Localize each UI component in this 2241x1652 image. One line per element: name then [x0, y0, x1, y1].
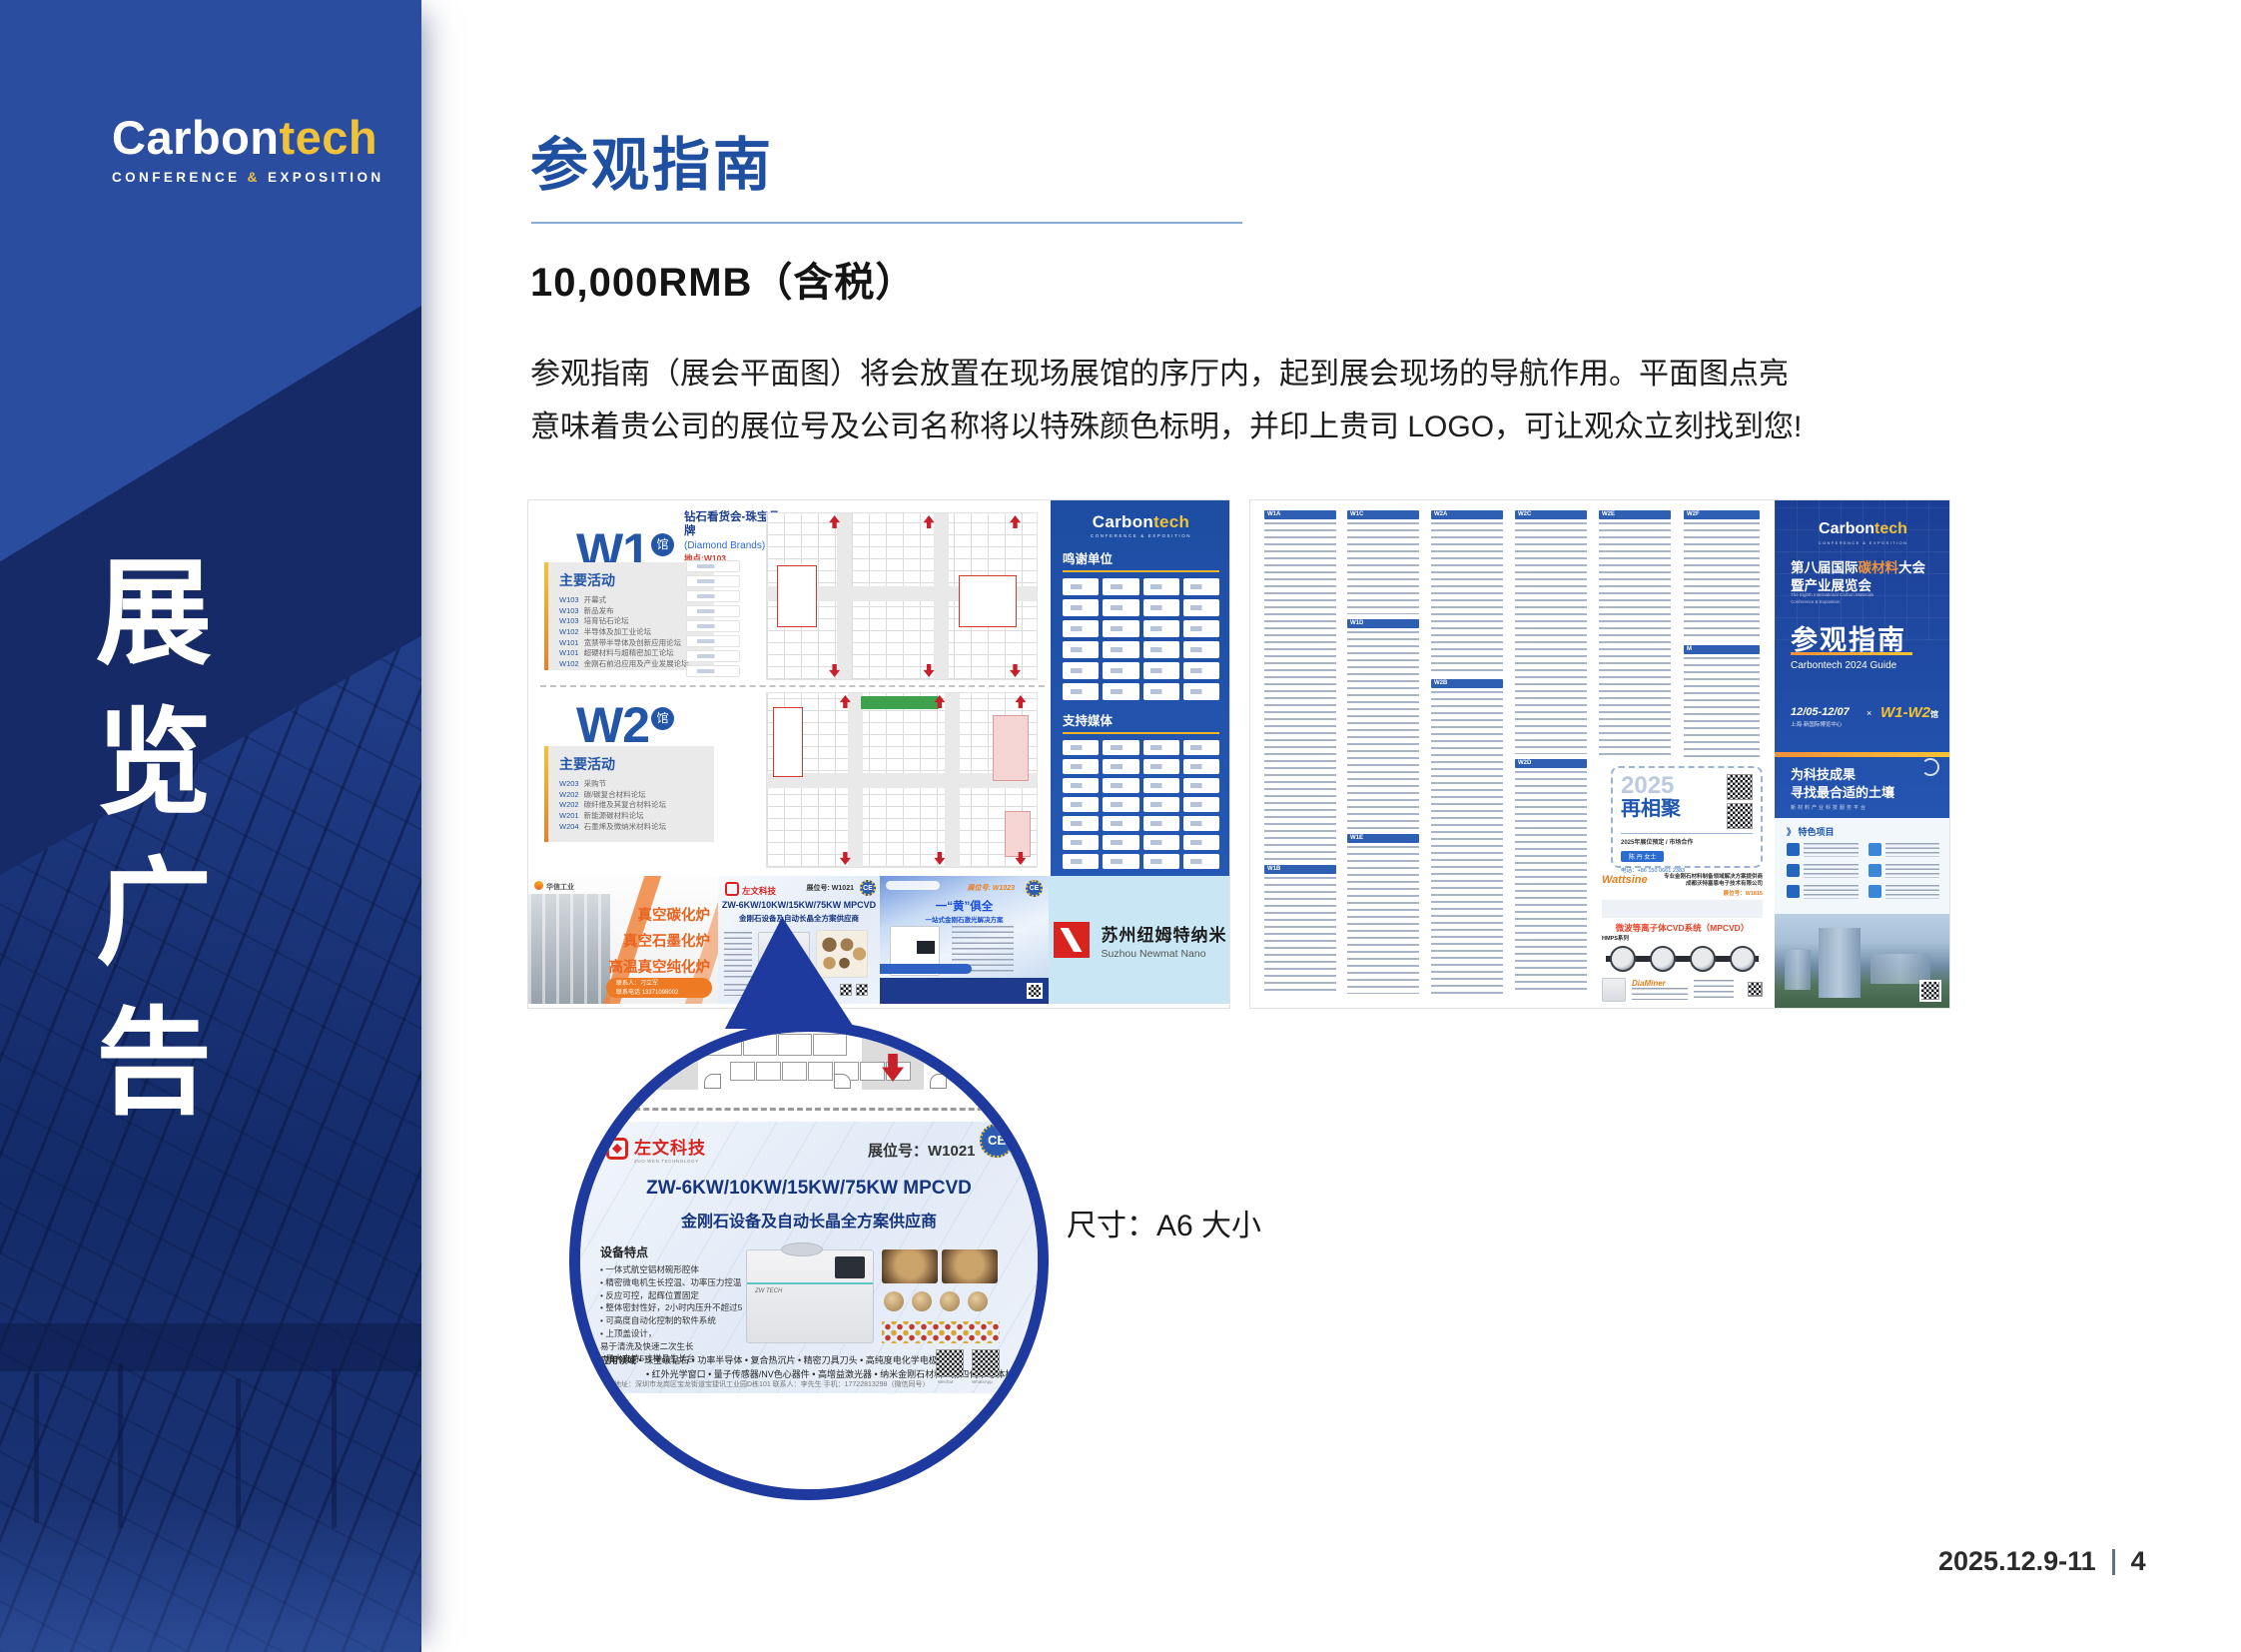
exhibitor-rows	[1347, 522, 1419, 614]
brand-logo-tile	[686, 575, 740, 587]
sponsor-logo-tile	[1143, 620, 1179, 637]
zw-subline: 金刚石设备及自动长晶全方案供应商	[580, 1208, 1038, 1232]
laser-machine-screen	[917, 941, 935, 954]
ad-laser: 展位号: W1023 CE 一“黄”俱全 一站式金刚石激光解决方案	[880, 876, 1049, 1004]
cover-halls-code: W1-W2	[1880, 704, 1930, 721]
wattsine-machines	[1602, 944, 1763, 974]
zw-logo-icon	[606, 1138, 628, 1160]
feature-item	[1787, 885, 1859, 899]
cover-guide-underline	[1791, 652, 1912, 655]
qr-code	[856, 984, 868, 996]
sponsor-logo-tile	[1183, 662, 1219, 679]
fold-dashed-line	[540, 685, 1045, 687]
exhibitor-rows	[1264, 877, 1336, 995]
media-logo-tile	[1183, 759, 1219, 774]
qr-code-whatsapp	[972, 1349, 1000, 1377]
laser-ribbon	[880, 964, 972, 974]
sample-photo	[912, 1291, 932, 1311]
wattsine-paragraph	[1602, 900, 1763, 918]
machine-circle-photo	[1730, 946, 1756, 972]
sample-photo	[882, 1249, 938, 1283]
media-logo-tile	[1143, 740, 1179, 755]
feature-lines	[1885, 885, 1940, 899]
zone-header: W1D	[1347, 619, 1419, 628]
zw-headline: ZW-6KW/10KW/15KW/75KW MPCVD	[718, 900, 880, 910]
sample-photo	[884, 1291, 904, 1311]
diaminer-lines2	[1694, 980, 1734, 1000]
newmat-logo	[1054, 922, 1090, 958]
diaminer-brand: DiaMiner	[1632, 979, 1688, 988]
cover-emblem-icon	[1921, 758, 1939, 776]
feature-line: • 一体式航空铝材碗形腔体	[600, 1263, 742, 1276]
sidebar: Carbontech CONFERENCE & EXPOSITION 展览广告	[0, 0, 421, 1652]
wattsine-line2: 成都沃特塞恩电子技术有限公司	[1664, 881, 1763, 888]
feature-item	[1787, 864, 1859, 878]
green-zone-label	[861, 696, 939, 709]
reunion-contact-pill: 陈 丹 女士	[1621, 851, 1664, 862]
sponsor-logo-tile	[1063, 599, 1099, 616]
media-logo-tile	[1063, 759, 1099, 774]
cover-features-title: 》 特色项目	[1787, 825, 1939, 838]
feature-lines	[1885, 843, 1940, 857]
activity-item: W204石墨烯及微纳米材料论坛	[559, 822, 708, 833]
media-underline	[1063, 732, 1219, 734]
qr-code	[1919, 980, 1941, 1002]
zone-header: W1C	[1347, 510, 1419, 519]
w2-floor-plan	[766, 692, 1038, 868]
slide-page: Carbontech CONFERENCE & EXPOSITION 展览广告 …	[0, 0, 2241, 1652]
building	[1785, 950, 1811, 990]
activity-accent-bar	[544, 746, 548, 842]
building	[1819, 928, 1861, 998]
sponsor-logo-tile	[1063, 620, 1099, 637]
ad-huaxin: 华信工业 真空碳化炉 真空石墨化炉 高温真空纯化炉 联系人：刁立军 联系电话 1…	[528, 876, 718, 1004]
carbontech-logo: Carbontech CONFERENCE & EXPOSITION	[112, 110, 384, 185]
brochure-floorplan: W1馆 主要活动 W103开幕式W103新品发布W103培育钻石论坛W102半导…	[527, 499, 1230, 1009]
ce-text: CE	[988, 1133, 1006, 1148]
qr-label: WhatsApp	[972, 1379, 993, 1384]
cover-logo: Carbontech	[1775, 520, 1950, 538]
booth-cell	[595, 1034, 629, 1056]
cover-halls-suffix: 馆	[1930, 710, 1938, 719]
activity-accent-bar	[544, 562, 548, 670]
footer-date: 2025.12.9-11	[1938, 1546, 2096, 1577]
sponsors-title: 鸣谢单位	[1063, 548, 1219, 567]
footer-separator	[2112, 1549, 2115, 1575]
media-logo-tile	[1183, 797, 1219, 812]
feature-line: 易于清洗及快速二次生长	[600, 1340, 742, 1353]
cover-slogan2: 寻找最合适的土壤	[1791, 784, 1894, 802]
feature-icon	[1787, 843, 1800, 856]
exhibitor-column: W2E	[1599, 510, 1671, 765]
laser-headline: 一“黄”俱全	[880, 898, 1049, 914]
zone-header: W2D	[1515, 759, 1587, 768]
feature-icon	[1868, 864, 1881, 877]
booth-row	[730, 1062, 911, 1081]
laser-booth: 展位号: W1023	[968, 883, 1015, 893]
exhibitor-column: W1C W1D W1E	[1347, 510, 1419, 999]
zw-brand-cn: 左文科技	[634, 1134, 706, 1159]
highlight-booth-w102	[777, 565, 817, 627]
exhibitor-rows	[1599, 522, 1671, 760]
applications-line1: 应用领域 • 珠宝级钻石 • 功率半导体 • 复合热沉片 • 精密刀具刀头 • …	[600, 1353, 938, 1366]
brand-logo-tile	[686, 605, 740, 617]
zw-bullet-lines	[724, 932, 752, 980]
price-text: 10,000RMB（含税）	[530, 250, 916, 308]
entrance-arrow-icon	[1015, 695, 1026, 708]
media-logo-tile	[1063, 835, 1099, 850]
cover-t1c: 大会	[1898, 560, 1925, 575]
zw-headline: ZW-6KW/10KW/15KW/75KW MPCVD	[580, 1178, 1038, 1200]
photo-post	[34, 1373, 39, 1523]
brand-logo-tile	[686, 620, 740, 632]
machine-lid	[781, 1242, 823, 1256]
ad-wattsine: Wattsine 专业金刚石材料制备领域解决方案提供商 成都沃特塞恩电子技术有限…	[1602, 874, 1763, 1004]
zone-header: W2E	[1599, 510, 1671, 519]
booth-cell	[1002, 1034, 1036, 1056]
activity-item: W203采购节	[559, 779, 708, 790]
title-divider	[531, 222, 1242, 224]
sponsor-logo-grid	[1063, 578, 1219, 700]
huaxin-contact: 联系人：刁立军	[616, 980, 712, 989]
wattsine-series: HMPS系列	[1602, 934, 1763, 942]
highlight-booth-w101	[959, 575, 1017, 627]
reunion-box: 2025 再相聚 2025年展位预定 / 市场合作 陈 丹 女士 电话：+86 …	[1611, 766, 1763, 868]
zw-booth: 展位号: W1021	[807, 883, 854, 893]
logo-part-yellow: tech	[280, 111, 378, 164]
w1-floor-plan	[766, 512, 1038, 680]
feature-line: • 上顶盖设计，	[600, 1327, 742, 1340]
cover-slogan1: 为科技成果	[1791, 766, 1894, 784]
door-shape	[834, 1074, 851, 1089]
cover-features: 》 特色项目	[1775, 818, 1950, 914]
zw-brand-en: ZUO WEN TECHNOLOGY	[634, 1159, 706, 1164]
reunion-title: 再相聚	[1621, 798, 1681, 821]
booth-cell	[860, 1062, 885, 1081]
features-title: 设备特点	[600, 1243, 742, 1260]
sample-photo	[942, 1249, 998, 1283]
sponsor-logo-tile	[1103, 599, 1138, 616]
sponsor-logo-tile	[1183, 683, 1219, 700]
w2-hall-badge: 馆	[651, 707, 674, 730]
description-line2: 意味着贵公司的展位号及公司名称将以特殊颜色标明，并印上贵司 LOGO，可让观众立…	[530, 401, 1878, 453]
feature-line: • 可高度自动化控制的软件系统	[600, 1314, 742, 1327]
brand-logo-tile	[686, 560, 740, 572]
qr-code	[840, 984, 852, 996]
cover-en2: Conference & Exposition	[1791, 599, 1873, 606]
feature-lines	[1804, 885, 1859, 899]
brand-logo-tile	[686, 590, 740, 602]
zone-header: W1E	[1347, 834, 1419, 843]
zone-header: M	[1684, 645, 1760, 654]
ce-badge: CE	[980, 1124, 1014, 1158]
activity-item: W201新能源碳材料论坛	[559, 811, 708, 822]
logo-sub-left: CONFERENCE	[112, 170, 248, 185]
exhibitor-rows	[1684, 522, 1760, 640]
cover-slogan: 为科技成果 寻找最合适的土壤	[1791, 766, 1894, 802]
media-logo-tile	[1143, 816, 1179, 831]
media-logo-tile	[1143, 854, 1179, 869]
exhibitor-column: W2F M	[1684, 510, 1760, 764]
exhibitor-rows	[1264, 522, 1336, 860]
ce-badge: CE	[860, 880, 876, 896]
sponsor-panel: Carbontech CONFERENCE & EXPOSITION 鸣谢单位 …	[1051, 500, 1230, 878]
media-logo-tile	[1183, 854, 1219, 869]
sponsor-logo-tile	[1143, 578, 1179, 595]
description: 参观指南（展会平面图）将会放置在现场展馆的序厅内，起到展会现场的导航作用。平面图…	[530, 348, 1878, 454]
door-shape	[608, 1074, 625, 1089]
cover-x: ×	[1867, 708, 1871, 718]
reunion-line: 2025年展位预定 / 市场合作	[1621, 833, 1753, 846]
w2-hall-number: W2	[576, 697, 649, 753]
address-line: 深圳地址：深圳市龙岗区宝龙街道宝捷讯工业园D栋101 联系人：李先生 手机：17…	[600, 1379, 929, 1389]
reunion-top: 2025 再相聚	[1621, 774, 1753, 829]
zone-header: W2C	[1515, 510, 1587, 519]
booth-cell	[932, 1034, 966, 1056]
laser-subline: 一站式金刚石激光解决方案	[880, 914, 1049, 924]
diaminer-text: DiaMiner	[1632, 979, 1688, 1000]
media-logo-tile	[1183, 816, 1219, 831]
media-logo-tile	[1143, 778, 1179, 793]
zone-header: W2A	[1431, 510, 1503, 519]
guide-cover: Carbontech CONFERENCE & EXPOSITION 第八届国际…	[1775, 500, 1950, 1009]
machine-accent	[747, 1282, 873, 1284]
media-logo-tile	[1103, 835, 1138, 850]
qr-code	[1727, 803, 1753, 829]
sponsor-logo-tile	[1063, 662, 1099, 679]
logo-sub-right: EXPOSITION	[261, 170, 384, 185]
applications-text1: • 珠宝级钻石 • 功率半导体 • 复合热沉片 • 精密刀具刀头 • 高纯度电化…	[639, 1355, 938, 1365]
logo-wordmark: Carbontech	[112, 110, 384, 165]
wattsine-booth: 展位号：W1815	[1664, 889, 1763, 897]
exhibitor-rows	[1347, 846, 1419, 994]
features-list: • 一体式航空铝材碗形腔体• 精密微电机生长控温、功率压力控温• 反应可控，起辉…	[600, 1263, 742, 1365]
reunion-phone: 电话：+86 150 0661 2383	[1621, 866, 1753, 874]
reunion-text: 2025 再相聚	[1621, 774, 1681, 829]
logo-sub-amp: &	[248, 170, 261, 185]
ce-text: CE	[863, 885, 873, 892]
activity-item: W202碳纤维及其复合材料论坛	[559, 800, 708, 811]
media-logo-tile	[1103, 740, 1138, 755]
chevron-icon: 》	[1787, 827, 1796, 837]
cover-logo-white: Carbon	[1819, 520, 1874, 537]
feature-icon	[1868, 843, 1881, 856]
exhibitor-column: W2C W2D	[1515, 510, 1587, 1000]
cover-halls: W1-W2馆	[1880, 704, 1938, 721]
media-logo-tile	[1063, 816, 1099, 831]
door-shape	[930, 1074, 947, 1089]
cover-title1: 第八届国际碳材料大会	[1791, 556, 1925, 576]
newmat-name-cn: 苏州纽姆特纳米	[1102, 921, 1227, 946]
cover-title2: 暨产业展览会	[1791, 574, 1871, 594]
features-block: 设备特点 • 一体式航空铝材碗形腔体• 精密微电机生长控温、功率压力控温• 反应…	[600, 1243, 742, 1365]
zw-samples-photo	[816, 930, 868, 978]
pink-zone	[1005, 811, 1031, 857]
media-logo-tile	[1103, 797, 1138, 812]
diaminer-machine-photo	[1602, 978, 1626, 1002]
section-vertical-title: 展览广告	[86, 551, 202, 1151]
cover-en1: The Eighth International Carbon Material…	[1791, 592, 1873, 599]
exhibitor-column: W2A W2B	[1431, 510, 1503, 1000]
qr-code	[1727, 774, 1753, 800]
activity-item: W202碳/碳复合材料论坛	[559, 790, 708, 801]
media-logo-tile	[1103, 816, 1138, 831]
feature-lines	[1804, 864, 1859, 878]
booth-cell	[782, 1062, 807, 1081]
booth-cell	[813, 1034, 847, 1056]
media-logo-tile	[1063, 778, 1099, 793]
cover-slogan3: 新材料产业科技服务平台	[1791, 804, 1867, 811]
sponsor-logo-tile	[1103, 662, 1138, 679]
feature-line: • 精密微电机生长控温、功率压力控温	[600, 1276, 742, 1289]
sponsor-logo-tile	[1103, 641, 1138, 658]
huaxin-line2: 真空石墨化炉	[623, 930, 710, 951]
logo-part-white: Carbon	[112, 111, 280, 164]
media-logo-tile	[1183, 835, 1219, 850]
footer: 2025.12.9-11 4	[1938, 1546, 2146, 1577]
booth-cell	[569, 1034, 594, 1056]
sponsor-logo-tile	[1063, 641, 1099, 658]
diaminer-lines	[1632, 988, 1688, 1000]
feature-lines	[1885, 864, 1940, 878]
w2-activity-title: 主要活动	[559, 754, 708, 774]
brand-logo-tile	[686, 635, 740, 647]
brochure-guide: W1A W1B W1C W1D W1E W2A W2B W2C W2D W2E	[1249, 499, 1950, 1009]
mpcvd-machine-photo: ZW TECH	[746, 1249, 874, 1343]
ce-badge: CE	[1026, 880, 1043, 897]
media-logo-tile	[1063, 740, 1099, 755]
feature-lines	[1804, 843, 1859, 857]
highlight-booth-w201	[773, 707, 803, 777]
zw-ad-enlarged: 左文科技 ZUO WEN TECHNOLOGY 展位号：W1021 CE ZW-…	[580, 1122, 1038, 1393]
w2-activity-box: 主要活动 W203采购节W202碳/碳复合材料论坛W202碳纤维及其复合材料论坛…	[544, 746, 714, 842]
door-shape	[704, 1074, 721, 1089]
machine-label: ZW TECH	[755, 1288, 782, 1294]
applications-label: 应用领域	[600, 1355, 636, 1365]
media-logo-tile	[1063, 854, 1099, 869]
media-title: 支持媒体	[1063, 710, 1219, 729]
photo-floor-glow	[0, 1502, 421, 1652]
media-logo-tile	[1143, 835, 1179, 850]
sponsor-logo-tile	[1143, 599, 1179, 616]
huaxin-line1: 真空碳化炉	[638, 904, 711, 925]
furnace-photo	[528, 894, 610, 1004]
machine-circle-photo	[1690, 946, 1716, 972]
huaxin-line3: 高温真空纯化炉	[609, 956, 711, 977]
cover-date: 12/05-12/07	[1791, 706, 1850, 718]
media-logo-grid	[1063, 740, 1219, 869]
photo-banner-band	[0, 1323, 421, 1371]
page-title: 参观指南	[530, 118, 774, 202]
panel-logo-white: Carbon	[1093, 512, 1153, 531]
brand-logo-tile	[686, 665, 740, 677]
ad-newmat: 苏州纽姆特纳米 Suzhou Newmat Nano	[1049, 876, 1230, 1004]
media-logo-tile	[1103, 759, 1138, 774]
feature-icon	[1787, 864, 1800, 877]
huaxin-contact-pill: 联系人：刁立军 联系电话 13371098002	[606, 978, 712, 998]
feature-line: • 整体密封性好，2小时内压升不超过5pa	[600, 1301, 742, 1314]
sponsor-logo-tile	[1103, 620, 1138, 637]
page-number: 4	[2131, 1546, 2146, 1577]
wattsine-brand: Wattsine	[1602, 874, 1648, 886]
booth-cell	[778, 1034, 812, 1056]
size-caption: 尺寸：A6 大小	[1067, 1201, 1261, 1244]
media-logo-tile	[1103, 778, 1138, 793]
diamond-brand-logos	[686, 560, 740, 677]
cover-logo-sub: CONFERENCE & EXPOSITION	[1775, 540, 1950, 545]
diaminer-row: DiaMiner	[1602, 978, 1763, 1002]
feature-item	[1868, 843, 1940, 857]
zone-header: W1A	[1264, 510, 1336, 519]
sponsor-logo-tile	[1063, 578, 1099, 595]
booth-cell	[708, 1034, 742, 1056]
media-logo-tile	[1183, 778, 1219, 793]
entrance-arrow-icon	[924, 515, 935, 528]
diamond-samples	[882, 1249, 1000, 1343]
zone-header: W1B	[1264, 865, 1336, 874]
w1-hall-badge: 馆	[651, 533, 674, 556]
booth-row	[708, 1034, 847, 1056]
media-logo-tile	[1143, 759, 1179, 774]
exhibitor-column: W1A W1B	[1264, 510, 1336, 1000]
newmat-names: 苏州纽姆特纳米 Suzhou Newmat Nano	[1102, 921, 1227, 960]
reunion-year: 2025	[1621, 774, 1681, 798]
feature-line: • 反应可控，起辉位置固定	[600, 1289, 742, 1302]
qr-code	[1027, 983, 1043, 999]
sponsor-logo-tile	[1183, 641, 1219, 658]
media-logo-tile	[1143, 797, 1179, 812]
exhibitor-rows	[1515, 771, 1587, 995]
sample-photo	[940, 1291, 960, 1311]
huaxin-brand: 华信工业	[534, 881, 574, 892]
entrance-arrow-icon	[1010, 515, 1021, 528]
qr-label: Wechat	[938, 1379, 953, 1384]
machine-circle-photo	[1650, 946, 1676, 972]
exit-arrow-icon	[924, 664, 935, 677]
sponsor-logo-tile	[1183, 620, 1219, 637]
exit-arrow-icon	[1010, 664, 1021, 677]
media-logo-tile	[1103, 854, 1138, 869]
reunion-qrs	[1727, 774, 1753, 829]
laser-footer-strip	[880, 978, 1049, 1004]
features-grid	[1787, 843, 1939, 899]
machine-screen	[835, 1256, 865, 1278]
media-logo-tile	[1063, 797, 1099, 812]
exhibitor-rows	[1684, 657, 1760, 759]
zw-subline: 金刚石设备及自动长晶全方案供应商	[718, 913, 880, 924]
cover-guide-en: Carbontech 2024 Guide	[1791, 660, 1896, 671]
feature-icon	[1868, 885, 1881, 898]
booth-row	[569, 1034, 629, 1056]
sponsor-logo-tile	[1143, 662, 1179, 679]
sponsor-logo-tile	[1143, 641, 1179, 658]
qr-code	[1748, 982, 1763, 997]
magnifier-circle: 左文科技 ZUO WEN TECHNOLOGY 展位号：W1021 CE ZW-…	[569, 1021, 1049, 1500]
sponsors-underline	[1063, 570, 1219, 572]
exhibitor-rows	[1347, 631, 1419, 829]
sample-photo	[968, 1291, 988, 1311]
description-line1: 参观指南（展会平面图）将会放置在现场展馆的序厅内，起到展会现场的导航作用。平面图…	[530, 348, 1878, 401]
qr-code-wechat	[936, 1349, 964, 1377]
booth-row	[932, 1034, 1036, 1056]
exit-arrow-icon	[934, 852, 945, 865]
booth-cell	[967, 1034, 1001, 1056]
media-logo-tile	[1183, 740, 1219, 755]
features-title-text: 特色项目	[1799, 827, 1835, 837]
sponsor-logo-tile	[1063, 683, 1099, 700]
wattsine-product: 微波等离子体CVD系统（MPCVD）	[1602, 922, 1763, 934]
booth-cell	[743, 1034, 777, 1056]
